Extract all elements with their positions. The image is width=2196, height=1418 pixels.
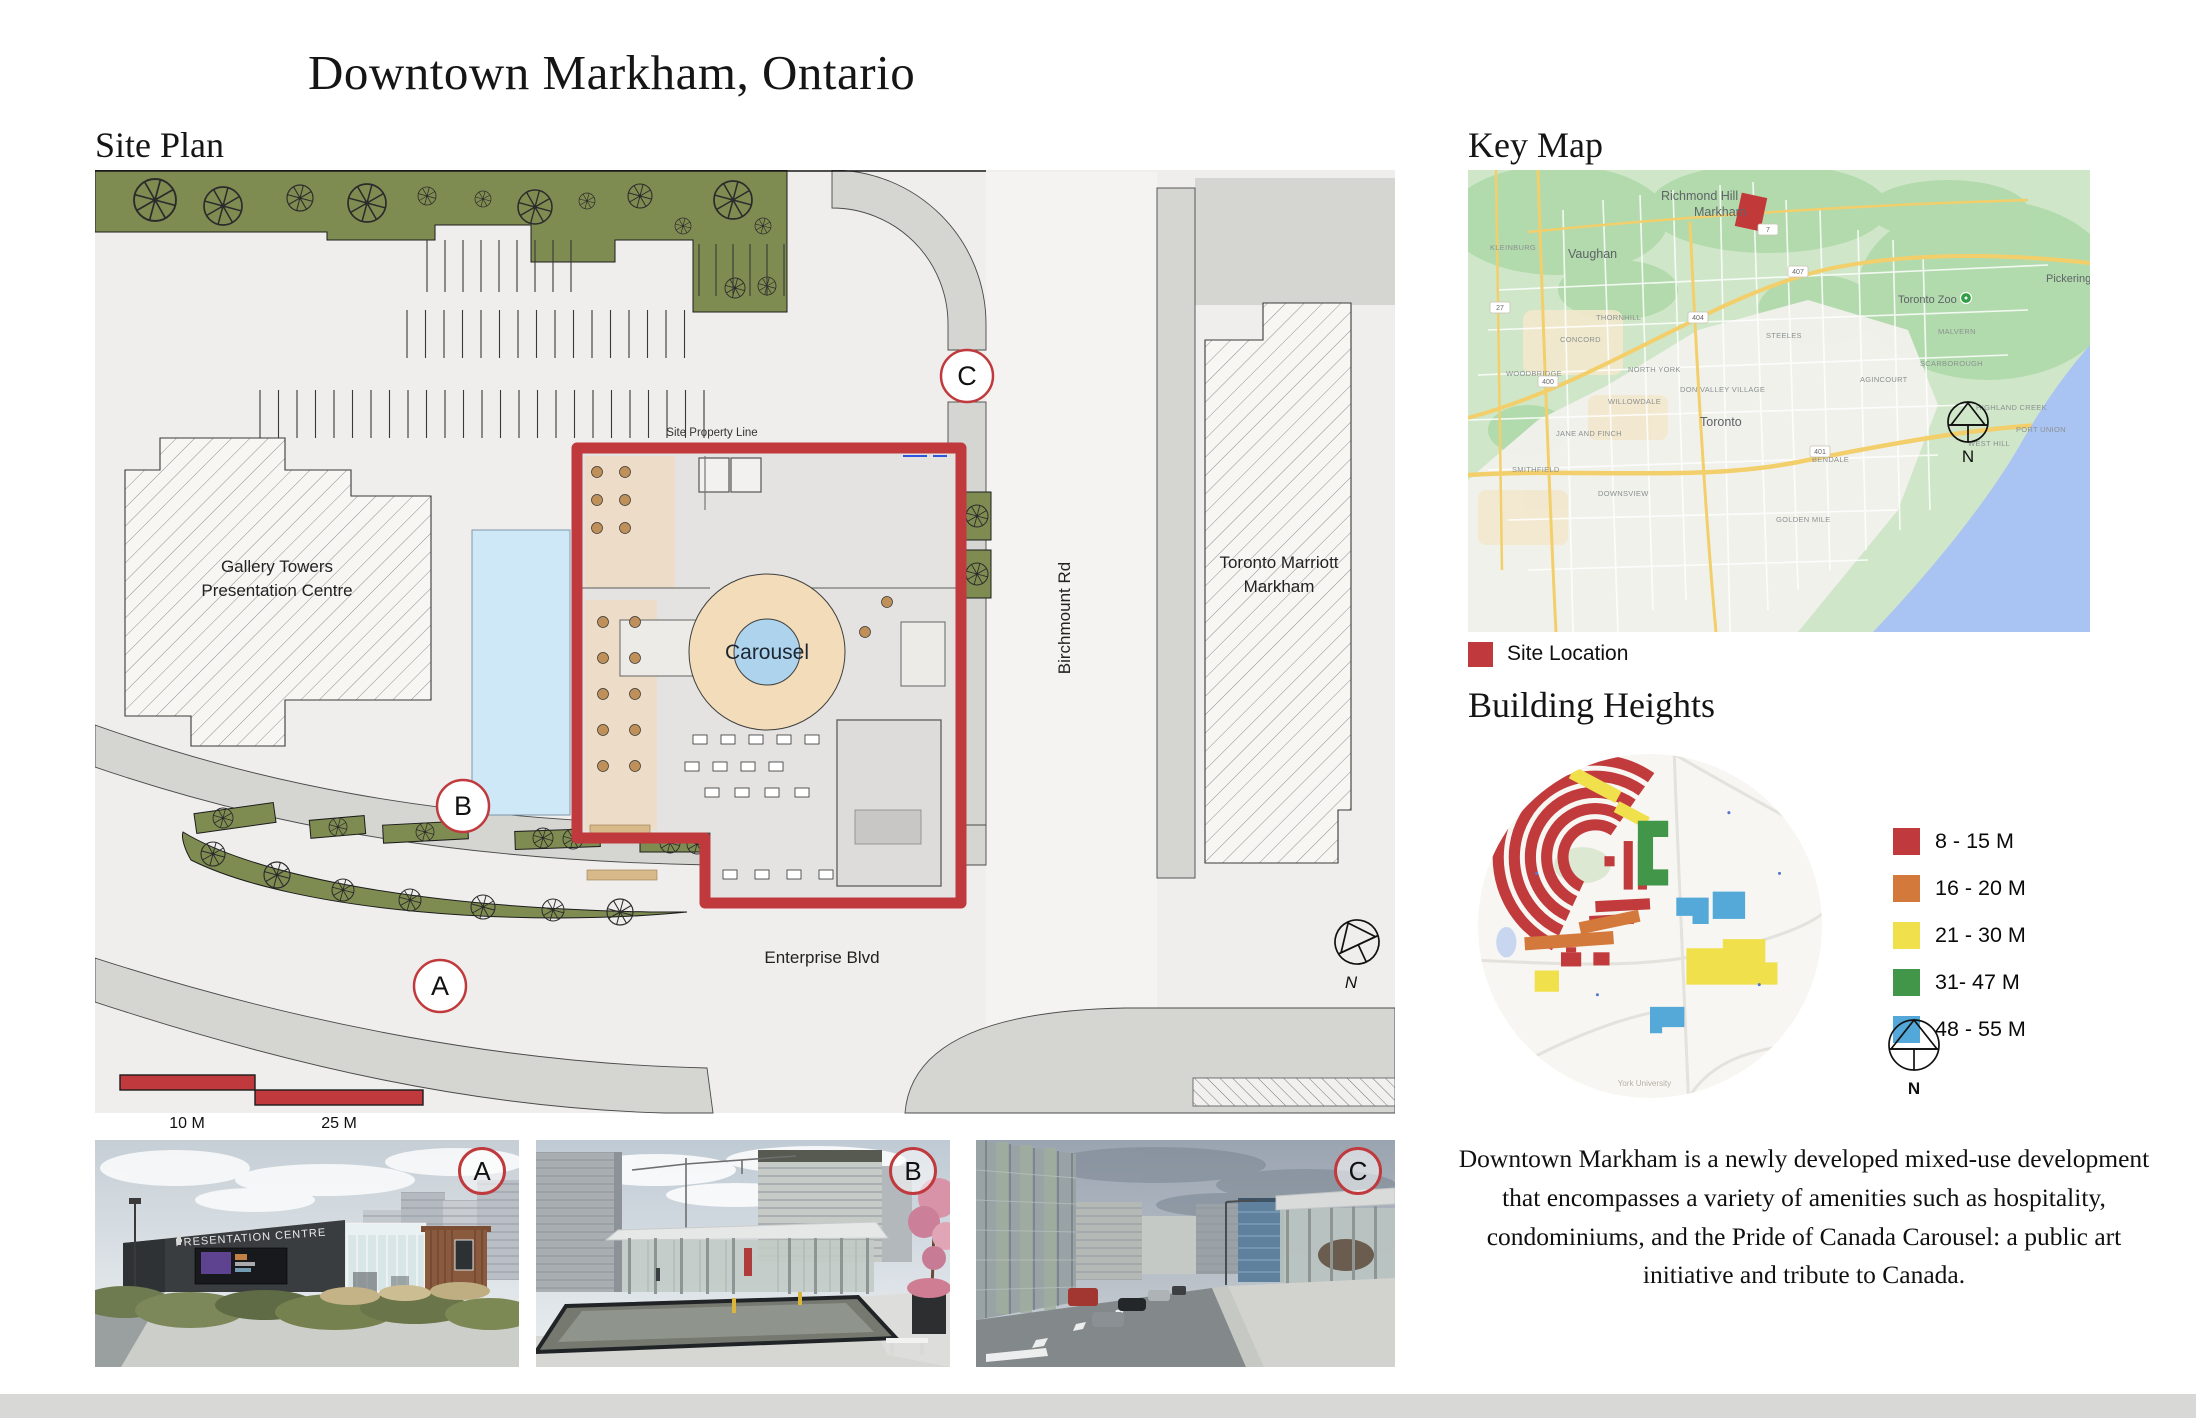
carousel: Carousel <box>689 574 845 730</box>
site-location-swatch <box>1468 642 1493 667</box>
bh-map-street-label: York University <box>1618 1079 1673 1088</box>
bh-legend-row: 16 - 20 M <box>1893 875 2133 902</box>
keymap-label: Vaughan <box>1568 247 1617 261</box>
photo-b-person <box>656 1268 660 1281</box>
svg-text:B: B <box>454 791 472 821</box>
keymap-label: DOWNSVIEW <box>1598 489 1649 498</box>
keymap-label: THORNHILL <box>1596 313 1641 322</box>
gallery-label-2: Presentation Centre <box>201 581 352 600</box>
keymap-label: Pickering <box>2046 273 2090 285</box>
keymap-label: KLEINBURG <box>1490 243 1536 252</box>
keymap-label: 407 <box>1792 269 1804 276</box>
photo-c-badge: C <box>1334 1147 1382 1195</box>
keymap-label: 7 <box>1766 227 1770 234</box>
bh-legend-swatch <box>1893 969 1920 996</box>
bh-legend-row: 31- 47 M <box>1893 969 2133 996</box>
viewpoint-marker-a: A <box>414 960 466 1012</box>
photo-c-left-tower <box>976 1140 1076 1320</box>
photo-c-pavilion <box>1276 1188 1395 1290</box>
keymap-label: 27 <box>1496 305 1504 312</box>
bh-legend-label: 21 - 30 M <box>1935 923 2026 948</box>
svg-text:C: C <box>957 361 977 391</box>
building-heights-heading: Building Heights <box>1468 684 1715 726</box>
reflecting-pool <box>472 530 570 815</box>
key-map-heading: Key Map <box>1468 124 1603 166</box>
bh-legend-row: 8 - 15 M <box>1893 828 2133 855</box>
photo-c-blue-office <box>1238 1198 1284 1282</box>
carousel-label: Carousel <box>725 641 809 664</box>
photo-b-carousel-pavilion: B <box>536 1140 950 1367</box>
plan-north-label: N <box>1345 973 1358 992</box>
marriott-label-1: Toronto Marriott <box>1219 553 1338 572</box>
keymap-north-label: N <box>1962 447 1974 466</box>
keymap-label: PORT UNION <box>2016 425 2066 434</box>
building-heights-map: York University <box>1476 752 1824 1100</box>
bh-compass-icon <box>1889 1020 1939 1070</box>
photo-a-presentation-centre: PRESENTATION CENTRE A <box>95 1140 519 1367</box>
keymap-label: MALVERN <box>1938 327 1976 336</box>
bh-legend-row: 21 - 30 M <box>1893 922 2133 949</box>
site-location-label: Site Location <box>1507 642 1628 666</box>
site-location-legend: Site Location <box>1468 640 1628 668</box>
keymap-label: JANE AND FINCH <box>1556 429 1622 438</box>
scale-25m-label: 25 M <box>321 1115 357 1132</box>
keymap-label: GOLDEN MILE <box>1776 515 1831 524</box>
bh-compass: N <box>1878 1012 1950 1104</box>
bh-legend-label: 31- 47 M <box>1935 970 2020 995</box>
keymap-label: HIGHLAND CREEK <box>1976 403 2047 412</box>
svg-text:A: A <box>431 971 449 1001</box>
project-description: Downtown Markham is a newly developed mi… <box>1443 1140 2165 1295</box>
viewpoint-marker-c: C <box>941 350 993 402</box>
keymap-label: WILLOWDALE <box>1608 397 1661 406</box>
photo-a-billboard-art <box>201 1252 255 1274</box>
keymap-label: 404 <box>1692 315 1704 322</box>
bh-north-label: N <box>1908 1079 1920 1098</box>
site-plan-drawing: Carousel Site Property Line Gallery Towe… <box>95 170 1395 1135</box>
page-title: Downtown Markham, Ontario <box>308 44 915 101</box>
scale-10m-label: 10 M <box>169 1115 205 1132</box>
keymap-label: AGINCOURT <box>1860 375 1908 384</box>
keymap-label: Toronto <box>1700 415 1742 429</box>
keymap-label: 401 <box>1814 449 1826 456</box>
viewpoint-marker-b: B <box>437 780 489 832</box>
marriott-label-2: Markham <box>1244 577 1315 596</box>
enterprise-label: Enterprise Blvd <box>764 948 879 967</box>
key-map: Richmond HillVaughanMarkhamToronto ZooPi… <box>1468 170 2090 632</box>
keymap-label: DON VALLEY VILLAGE <box>1680 385 1765 394</box>
keymap-label: STEELES <box>1766 331 1802 340</box>
keymap-label: CONCORD <box>1560 335 1601 344</box>
photo-b-pavilion <box>606 1222 888 1294</box>
keymap-label: Markham <box>1694 205 1746 219</box>
site-plan-heading: Site Plan <box>95 124 224 166</box>
keymap-label: Richmond Hill <box>1661 189 1738 203</box>
keymap-label: SCARBOROUGH <box>1920 359 1983 368</box>
keymap-label: Toronto Zoo <box>1898 294 1957 306</box>
photo-c-street-view: C <box>976 1140 1395 1367</box>
photo-a-badge: A <box>458 1147 506 1195</box>
toronto-zoo-pin-dot <box>1965 297 1968 300</box>
photo-a-lamp-head <box>129 1198 141 1204</box>
bh-legend-label: 16 - 20 M <box>1935 876 2026 901</box>
bh-legend-swatch <box>1893 828 1920 855</box>
birchmount-label: Birchmount Rd <box>1055 562 1074 674</box>
bh-legend-label: 8 - 15 M <box>1935 829 2014 854</box>
hatched-curb-strip <box>1193 1078 1395 1106</box>
bh-legend-swatch <box>1893 875 1920 902</box>
bh-pond <box>1496 927 1516 957</box>
keymap-label: SMITHFIELD <box>1512 465 1560 474</box>
photo-b-badge: B <box>889 1147 937 1195</box>
property-line-label: Site Property Line <box>666 427 757 439</box>
photo-a-glass-building <box>347 1224 425 1292</box>
photo-b-left-tower <box>536 1152 622 1292</box>
gallery-label-1: Gallery Towers <box>221 557 333 576</box>
keymap-label: NORTH YORK <box>1628 365 1681 374</box>
bh-legend-swatch <box>1893 922 1920 949</box>
keymap-label: 400 <box>1542 379 1554 386</box>
footer-bar <box>0 1394 2196 1418</box>
